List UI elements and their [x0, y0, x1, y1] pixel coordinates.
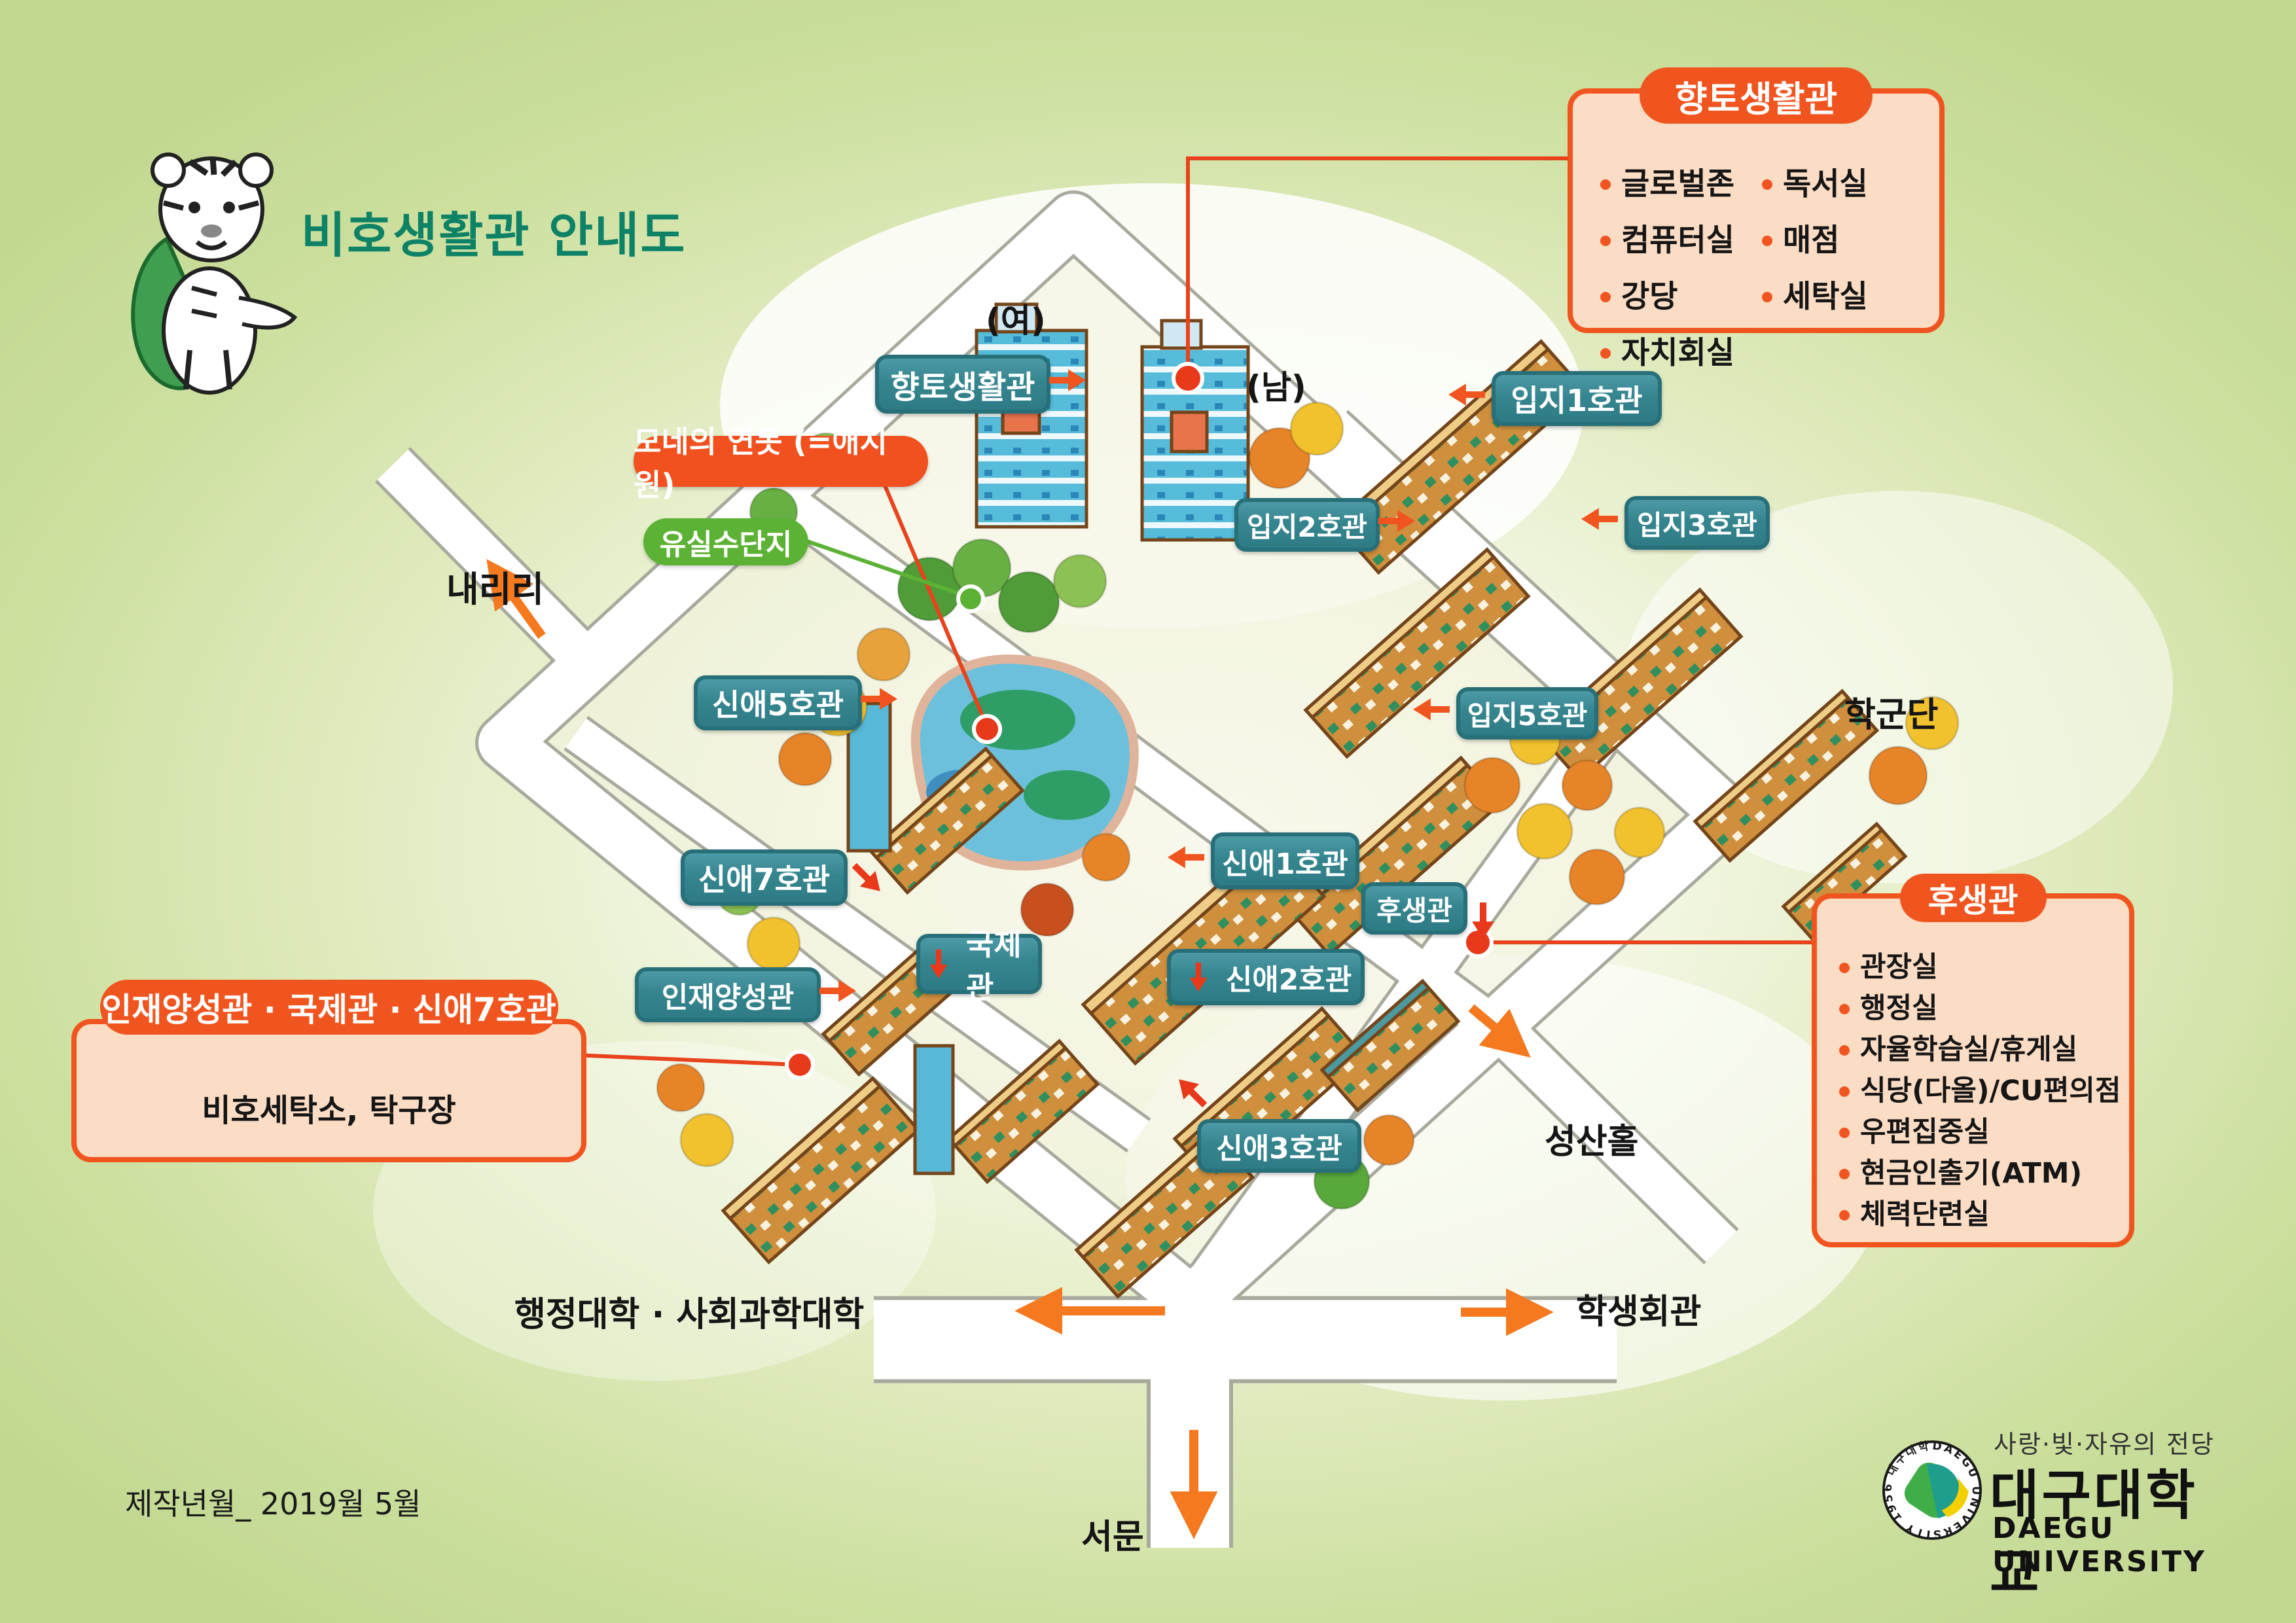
building-badge-ipji1: 입지1호관: [1492, 371, 1662, 426]
facility-item: 식당(다올)/CU편의점: [1839, 1071, 2129, 1112]
university-logo: 사랑·빛·자유의 전당 대구대학교 DAEGU UNIVERSITY: [1877, 1414, 2244, 1564]
right-arrow-icon: [1378, 507, 1415, 535]
hyangto-facility-list-left: 글로벌존컴퓨터실강당자치회실: [1600, 156, 1734, 382]
building-badge-ipji5: 입지5호관: [1456, 687, 1598, 740]
building-badge-sinae5: 신애5호관: [694, 675, 862, 730]
facility-item: 자율학습실/휴게실: [1839, 1029, 2129, 1071]
road-label-naeriri: 내리리: [446, 560, 544, 612]
husaeng-facility-list: 관장실행정실자율학습실/휴게실식당(다올)/CU편의점우편집중실현금인출기(AT…: [1817, 899, 2129, 1236]
facility-item: 강당: [1600, 269, 1734, 325]
up-left-arrow-icon: [1169, 1069, 1214, 1115]
building-badge-label: 입지1호관: [1511, 377, 1642, 420]
university-name-en: DAEGU UNIVERSITY: [1992, 1512, 2244, 1578]
callout-injae-group: 인재양성관 · 국제관 · 신애7호관 비호세탁소, 탁구장: [71, 1019, 586, 1162]
facility-item: 세탁실: [1762, 269, 1868, 325]
building-badge-label: 입지3호관: [1637, 503, 1757, 543]
down-arrow-icon: [1469, 902, 1497, 939]
facility-item: 행정실: [1839, 988, 2129, 1029]
building-badge-sinae1: 신애1호관: [1211, 832, 1359, 889]
left-arrow-icon: [1448, 381, 1485, 408]
road-label-seomun: 서문: [1081, 1509, 1144, 1558]
callout-injae-body: 비호세탁소, 탁구장: [77, 1084, 581, 1130]
road-label-haengjeong: 행정대학 · 사회과학대학: [514, 1287, 864, 1336]
map-pill-yusil: 유실수단지: [643, 518, 808, 565]
down-right-arrow-icon: [844, 855, 889, 901]
building-badge-label: 향토생활관: [891, 361, 1035, 407]
map-pill-monet: 모네의 연못 (=애지원): [634, 436, 928, 487]
building-badge-label: 신애2호관: [1226, 956, 1352, 998]
left-arrow-icon: [1581, 505, 1618, 533]
down-arrow-icon: [927, 950, 950, 979]
building-badge-label: 입지2호관: [1247, 505, 1367, 545]
facility-item: 현금인출기(ATM): [1839, 1153, 2129, 1194]
building-badge-label: 후생관: [1376, 889, 1452, 929]
down-arrow-icon: [1187, 963, 1210, 992]
road-label-yeo: (여): [986, 294, 1046, 342]
callout-injae-title: 인재양성관 · 국제관 · 신애7호관: [100, 980, 558, 1035]
facility-item: 매점: [1762, 213, 1868, 269]
facility-item: 우편집중실: [1839, 1112, 2129, 1153]
building-badge-hyangto: 향토생활관: [875, 355, 1050, 414]
building-badge-gukje: 국제관: [916, 934, 1042, 994]
road-label-haksaeng: 학생회관: [1576, 1284, 1701, 1333]
building-badge-label: 신애5호관: [712, 681, 844, 724]
road-label-nam: (남): [1246, 361, 1306, 408]
callout-husaeng-hall: 후생관 관장실행정실자율학습실/휴게실식당(다올)/CU편의점우편집중실현금인출…: [1812, 893, 2134, 1247]
building-badge-sinae2: 신애2호관: [1167, 949, 1365, 1005]
page-title: 비호생활관 안내도: [301, 196, 686, 266]
building-badge-sinae3: 신애3호관: [1197, 1119, 1361, 1173]
campus-map-poster: DAEGU UNIVERSITY 1956 대구대학교 비호생활관 안내도 향토…: [0, 0, 2296, 1623]
facility-item: 컴퓨터실: [1600, 213, 1734, 269]
building-badge-label: 인재양성관: [662, 974, 794, 1016]
callout-hyangto-hall: 향토생활관 글로벌존컴퓨터실강당자치회실 독서실매점세탁실: [1568, 88, 1945, 333]
callout-husaeng-title: 후생관: [1900, 874, 2047, 922]
facility-item: 관장실: [1839, 947, 2129, 988]
production-date-caption: 제작년월_ 2019월 5월: [125, 1480, 422, 1524]
callout-hyangto-title: 향토생활관: [1640, 67, 1873, 124]
building-badge-label: 국제관: [966, 921, 1038, 1007]
building-badge-label: 신애1호관: [1222, 840, 1348, 882]
facility-item: 독서실: [1762, 156, 1868, 213]
building-badge-ipji3: 입지3호관: [1624, 496, 1770, 550]
right-arrow-icon: [1049, 366, 1086, 394]
building-badge-label: 신애3호관: [1216, 1125, 1342, 1167]
building-badge-ipji2: 입지2호관: [1234, 498, 1380, 552]
left-arrow-icon: [1413, 696, 1450, 723]
right-arrow-icon: [819, 977, 856, 1005]
right-arrow-icon: [861, 685, 897, 713]
facility-item: 체력단련실: [1839, 1194, 2129, 1236]
building-badge-label: 입지5호관: [1467, 694, 1588, 734]
building-badge-label: 신애7호관: [698, 856, 830, 899]
left-arrow-icon: [1168, 844, 1204, 871]
road-label-hakgundan: 학군단: [1844, 687, 1939, 736]
hyangto-facility-list-right: 독서실매점세탁실: [1762, 156, 1868, 382]
facility-item: 글로벌존: [1600, 156, 1734, 213]
building-badge-injae: 인재양성관: [635, 967, 821, 1022]
building-badge-sinae7: 신애7호관: [681, 849, 848, 906]
road-label-seongsan: 성산홀: [1545, 1114, 1639, 1163]
building-badge-husaeng: 후생관: [1361, 882, 1467, 935]
